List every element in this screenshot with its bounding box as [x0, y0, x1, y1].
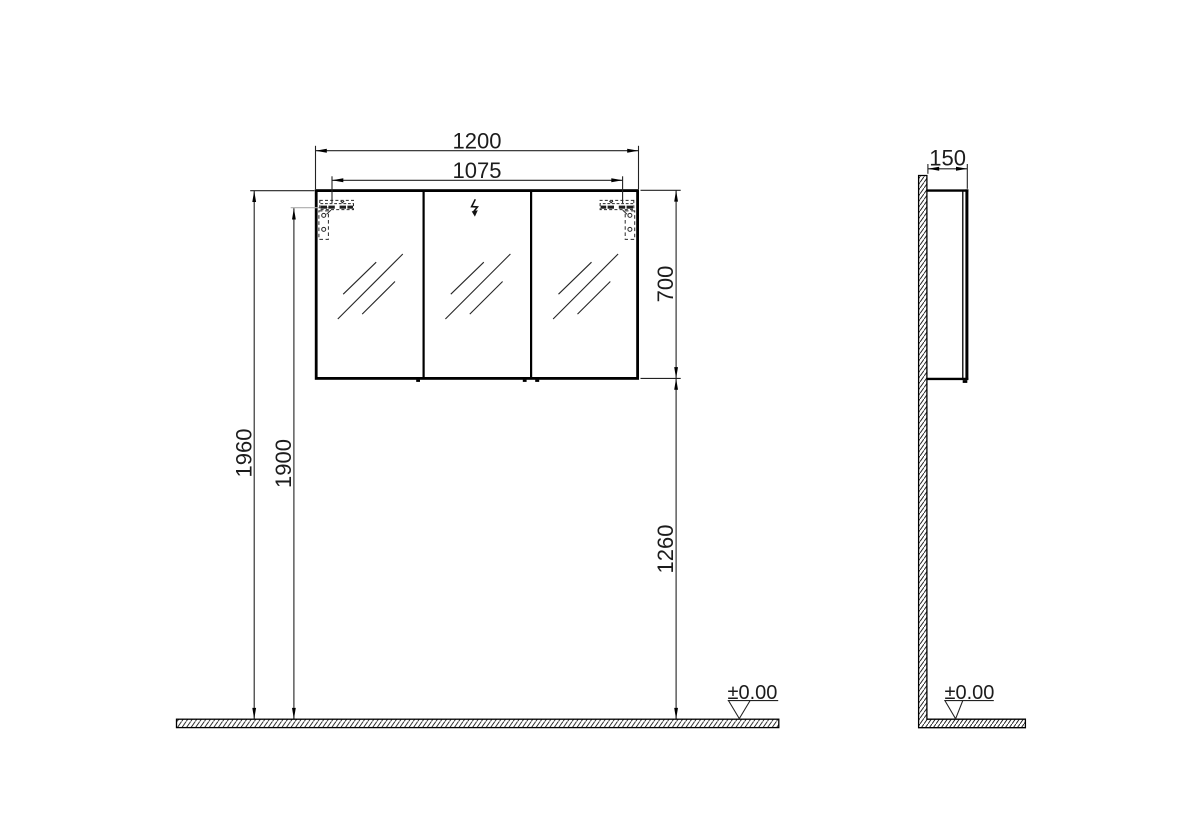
svg-text:700: 700 — [653, 266, 678, 303]
svg-text:1075: 1075 — [453, 158, 502, 183]
svg-text:1960: 1960 — [232, 429, 257, 478]
svg-text:1260: 1260 — [653, 525, 678, 574]
svg-text:150: 150 — [929, 145, 966, 170]
svg-text:1900: 1900 — [271, 439, 296, 488]
svg-text:1200: 1200 — [453, 128, 502, 153]
